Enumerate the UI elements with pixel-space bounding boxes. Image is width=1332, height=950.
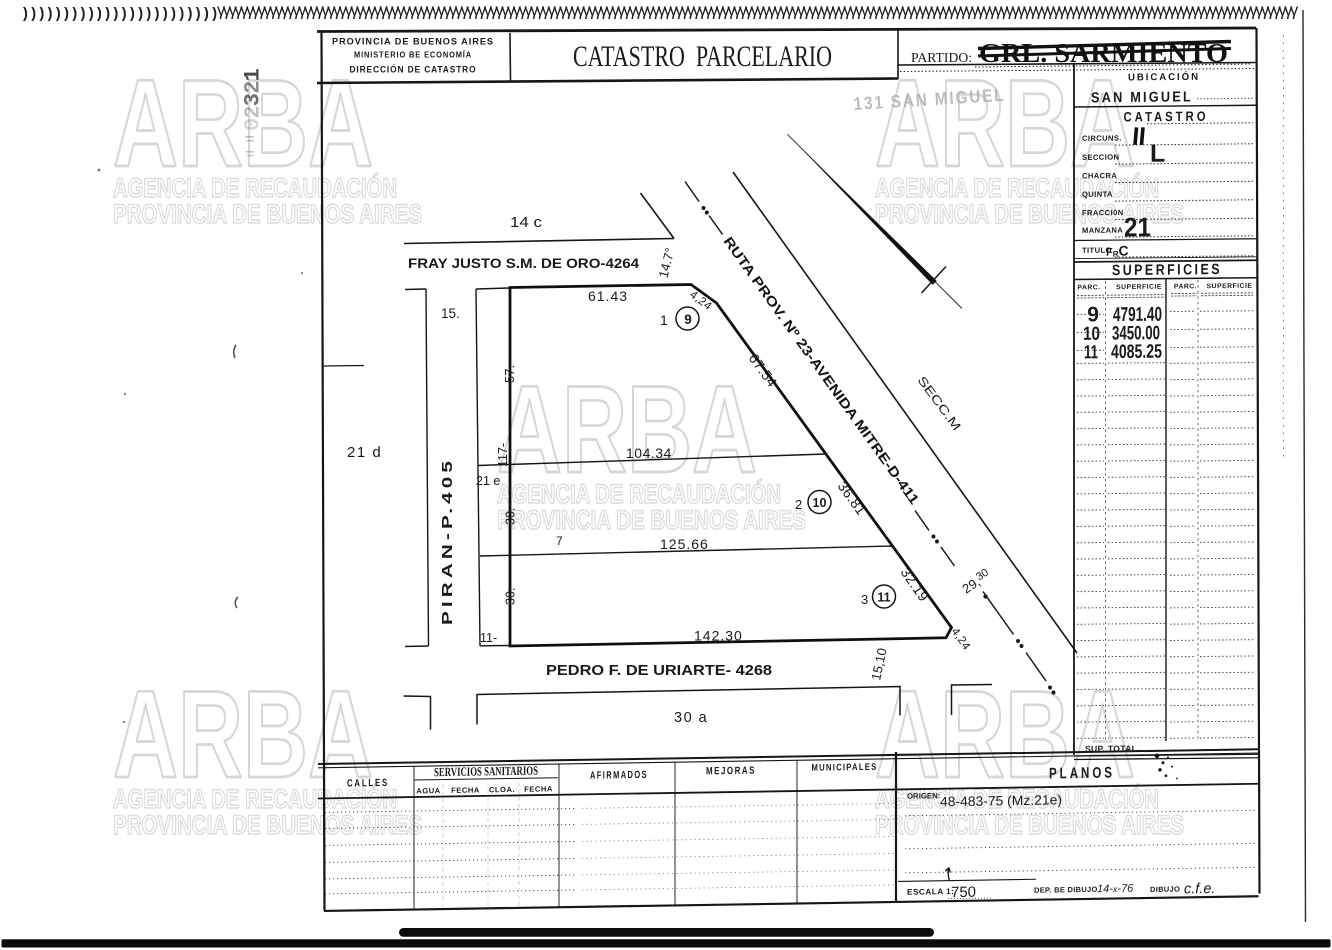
svg-text:FRAY JUSTO S.M. DE ORO-4264: FRAY JUSTO S.M. DE ORO-4264	[408, 255, 639, 271]
svg-text:c.f.e.: c.f.e.	[1184, 881, 1215, 897]
svg-text:FRACCI0N: FRACCI0N	[1082, 208, 1124, 217]
svg-text:30.: 30.	[504, 588, 518, 605]
svg-text:UBICACIÓN: UBICACIÓN	[1128, 70, 1200, 84]
svg-text:21 d: 21 d	[347, 444, 382, 461]
svg-text:PROVINCIA DE BUENOS AIRES: PROVINCIA DE BUENOS AIRES	[497, 505, 806, 535]
svg-text:γγγγγγγγγγγγγγγγγγγγγγγγγγγγγγ: γγγγγγγγγγγγγγγγγγγγγγγγγγγγγγγγγγγγγγγγ…	[217, 2, 1299, 20]
svg-text:3: 3	[861, 592, 868, 607]
svg-text:CATASTRO PARCELARIO: CATASTRO PARCELARIO	[573, 40, 832, 73]
svg-text:125.66: 125.66	[660, 536, 709, 552]
svg-text:PLANOS: PLANOS	[1049, 765, 1115, 783]
svg-text:MEJORAS: MEJORAS	[706, 765, 756, 778]
svg-text:SERVICIOS SANITARIOS: SERVICIOS SANITARIOS	[434, 764, 538, 780]
svg-text:AFIRMADOS: AFIRMADOS	[590, 769, 648, 782]
svg-text:21: 21	[1124, 212, 1151, 242]
svg-text:AGUA: AGUA	[416, 786, 440, 795]
svg-text:QUINTA: QUINTA	[1082, 190, 1113, 199]
svg-text:1: 1	[660, 312, 668, 328]
svg-text:SAN MIGUEL: SAN MIGUEL	[1091, 89, 1193, 106]
svg-text:PARC.: PARC.	[1174, 283, 1197, 290]
svg-text:11-: 11-	[480, 631, 497, 645]
svg-text:FECHA: FECHA	[451, 785, 480, 794]
svg-text:30.: 30.	[504, 508, 518, 525]
svg-text:CATASTRO: CATASTRO	[1124, 109, 1209, 125]
svg-text:SUPERFICIES: SUPERFICIES	[1112, 261, 1222, 279]
svg-text:CIRCUNS.: CIRCUNS.	[1082, 134, 1122, 143]
svg-text:14 c: 14 c	[510, 215, 542, 231]
svg-text:FECHA: FECHA	[524, 784, 553, 793]
svg-text:CLOA.: CLOA.	[489, 785, 515, 794]
svg-text:ESCALA 1:: ESCALA 1:	[907, 887, 954, 897]
svg-text:SUPERFICIE: SUPERFICIE	[1116, 284, 1162, 291]
svg-text:30 a: 30 a	[674, 710, 708, 726]
svg-text:L: L	[1150, 140, 1165, 168]
svg-text:10: 10	[813, 496, 827, 510]
svg-text:SUPERFICIE: SUPERFICIE	[1207, 283, 1253, 290]
svg-text:PEDRO F. DE URIARTE- 4268: PEDRO F. DE URIARTE- 4268	[546, 663, 772, 679]
svg-text:PARTIDO:: PARTIDO:	[911, 50, 972, 65]
svg-text:)))))))))))))))))))))))): ))))))))))))))))))))))))	[23, 6, 221, 22]
svg-text:14-x-76: 14-x-76	[1097, 883, 1134, 896]
svg-text:117-: 117-	[496, 443, 510, 467]
svg-text:MANZANA: MANZANA	[1082, 226, 1123, 235]
svg-text:PROVINCIA DE BUENOS AIRES: PROVINCIA DE BUENOS AIRES	[113, 810, 422, 840]
svg-text:57.-: 57.-	[502, 361, 517, 383]
svg-text:11: 11	[877, 591, 890, 605]
svg-text:15.: 15.	[441, 306, 460, 321]
svg-text:PIRAN-P.405: PIRAN-P.405	[439, 457, 456, 625]
svg-text:11: 11	[1084, 342, 1098, 363]
svg-text:48-483-75 (Mz.21e): 48-483-75 (Mz.21e)	[940, 792, 1062, 809]
svg-text:PARC.: PARC.	[1077, 284, 1100, 291]
svg-text:4085.25: 4085.25	[1111, 341, 1162, 363]
svg-text:7: 7	[556, 534, 563, 548]
svg-text:DEP. BE DIBUJO: DEP. BE DIBUJO	[1034, 885, 1098, 895]
svg-text:PROVINCIA DE BUENOS AIRES: PROVINCIA DE BUENOS AIRES	[332, 37, 494, 48]
svg-text:02321: 02321	[241, 68, 266, 131]
svg-text:DIRECCIÓN DE CATASTRO: DIRECCIÓN DE CATASTRO	[350, 64, 477, 75]
svg-text:CALLES: CALLES	[347, 777, 389, 790]
svg-text:PROVINCIA DE BUENOS AIRES: PROVINCIA DE BUENOS AIRES	[875, 810, 1184, 840]
svg-text:MINISTERIO BE ECONOMÍA: MINISTERIO BE ECONOMÍA	[354, 50, 472, 60]
svg-text:104.34: 104.34	[626, 445, 672, 461]
svg-text:MUNICIPALES: MUNICIPALES	[812, 762, 878, 774]
svg-text:142.30: 142.30	[694, 628, 743, 644]
svg-text:21 e: 21 e	[476, 474, 500, 488]
svg-text:CHACRA: CHACRA	[1082, 171, 1117, 180]
svg-text:2: 2	[795, 497, 802, 512]
svg-text:ORIGEN:: ORIGEN:	[907, 791, 940, 801]
svg-text:61.43: 61.43	[588, 288, 628, 304]
svg-text:PROVINCIA DE BUENOS AIRES: PROVINCIA DE BUENOS AIRES	[113, 199, 422, 229]
svg-text:9: 9	[684, 312, 692, 327]
svg-text:SECCION: SECCION	[1082, 153, 1119, 162]
svg-text:DIBUJO: DIBUJO	[1150, 884, 1180, 893]
